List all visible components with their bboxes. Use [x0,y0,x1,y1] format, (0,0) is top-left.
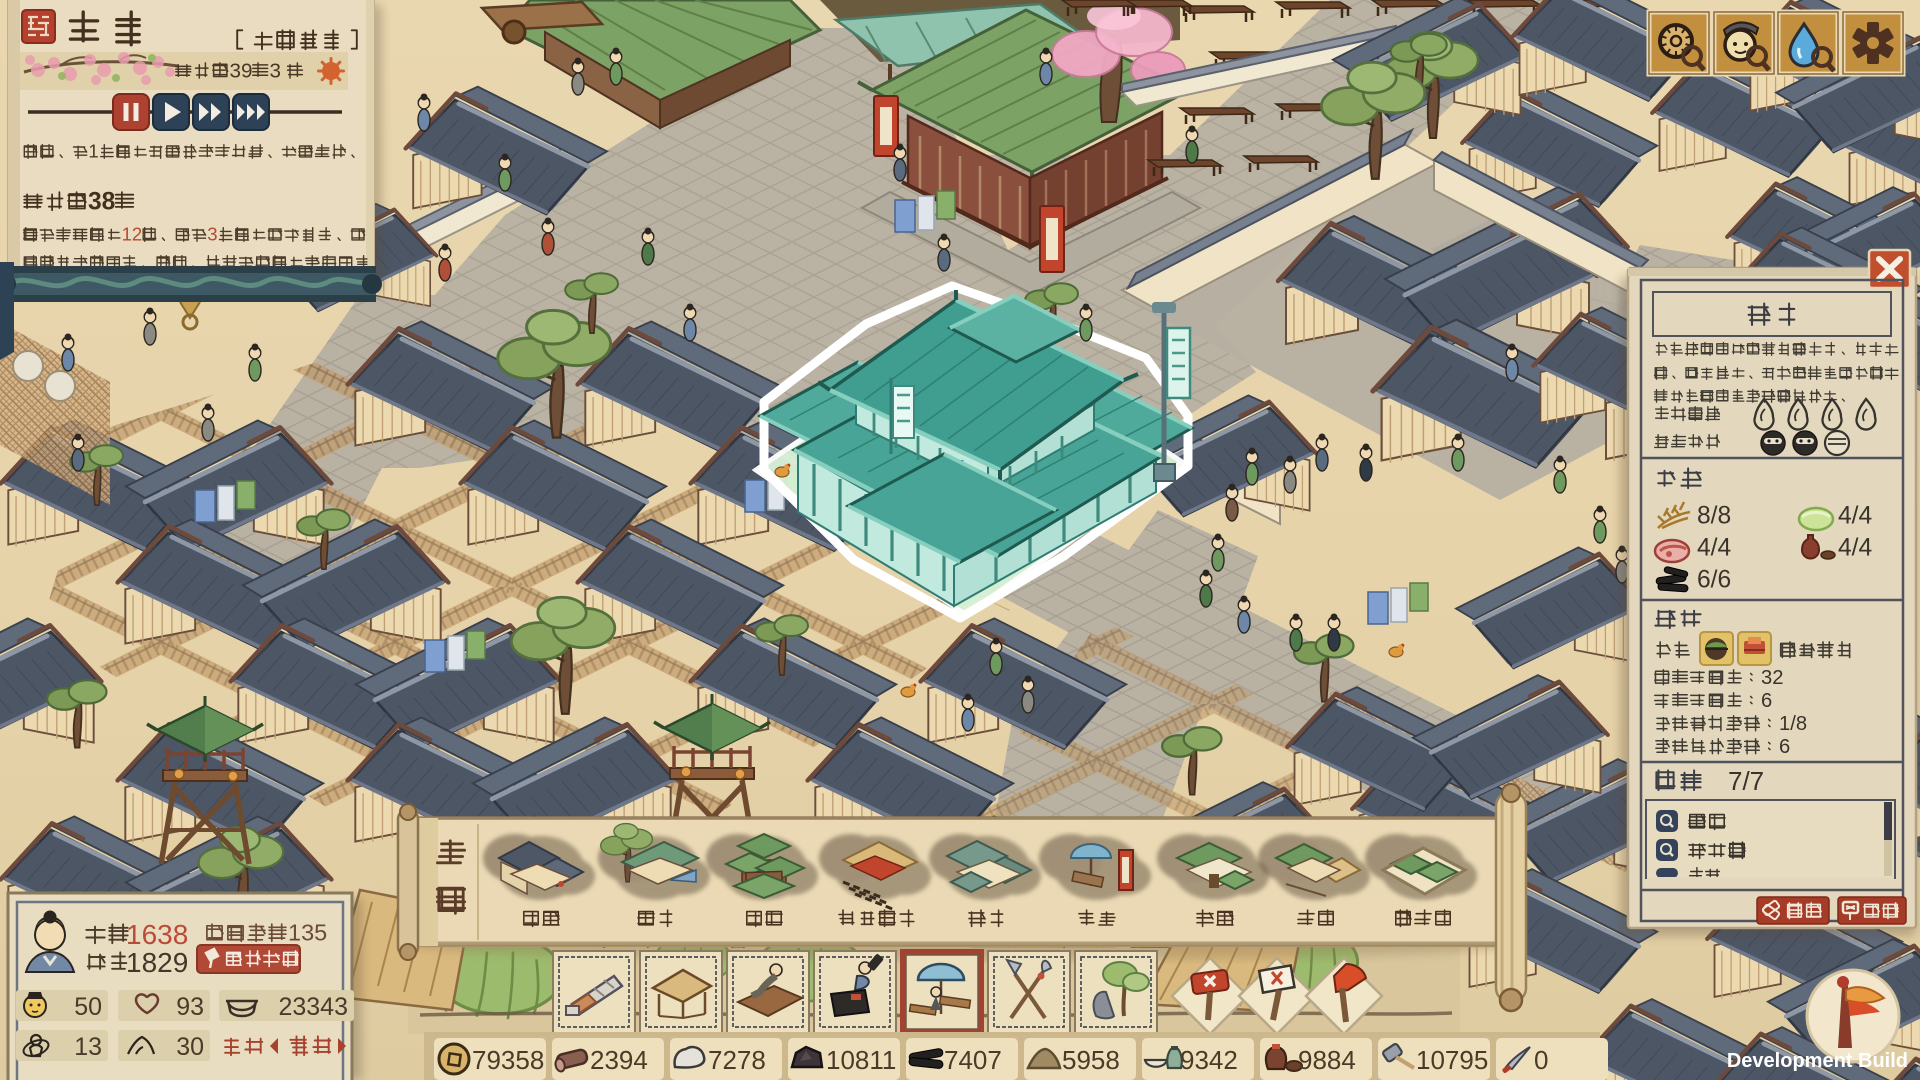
svg-text:32: 32 [1761,667,1783,689]
svg-text:93: 93 [176,993,204,1021]
svg-text:4/4: 4/4 [1697,534,1731,561]
svg-text:Development Build: Development Build [1727,1050,1908,1072]
svg-text:1: 1 [88,141,98,162]
svg-text:79358: 79358 [472,1045,544,1075]
svg-text:38: 38 [88,188,115,215]
svg-text:135: 135 [288,920,327,946]
svg-text:1829: 1829 [126,947,188,978]
svg-text:12: 12 [122,224,143,245]
svg-text:10811: 10811 [826,1045,896,1075]
svg-text:7407: 7407 [944,1045,1002,1075]
svg-text:3: 3 [270,59,282,82]
svg-text:4/4: 4/4 [1838,534,1872,561]
svg-text:10795: 10795 [1416,1045,1488,1075]
svg-text:39: 39 [230,59,253,82]
svg-text:4/4: 4/4 [1838,502,1872,529]
svg-text:6: 6 [1779,736,1790,758]
svg-text:1/8: 1/8 [1779,713,1807,735]
svg-text:8/8: 8/8 [1697,502,1731,529]
svg-text:0: 0 [1534,1045,1548,1075]
svg-text:7/7: 7/7 [1728,766,1764,796]
svg-text:7278: 7278 [708,1045,766,1075]
svg-text:1638: 1638 [126,919,188,950]
svg-text:3: 3 [207,224,217,245]
svg-text:6/6: 6/6 [1697,566,1731,593]
svg-text:23343: 23343 [278,993,348,1021]
svg-text:50: 50 [74,993,102,1021]
svg-text:13: 13 [74,1033,102,1061]
svg-text:5958: 5958 [1062,1045,1120,1075]
svg-text:2394: 2394 [590,1045,648,1075]
svg-text:6: 6 [1761,690,1772,712]
svg-text:30: 30 [176,1033,204,1061]
svg-text:9884: 9884 [1298,1045,1356,1075]
svg-text:9342: 9342 [1180,1045,1238,1075]
